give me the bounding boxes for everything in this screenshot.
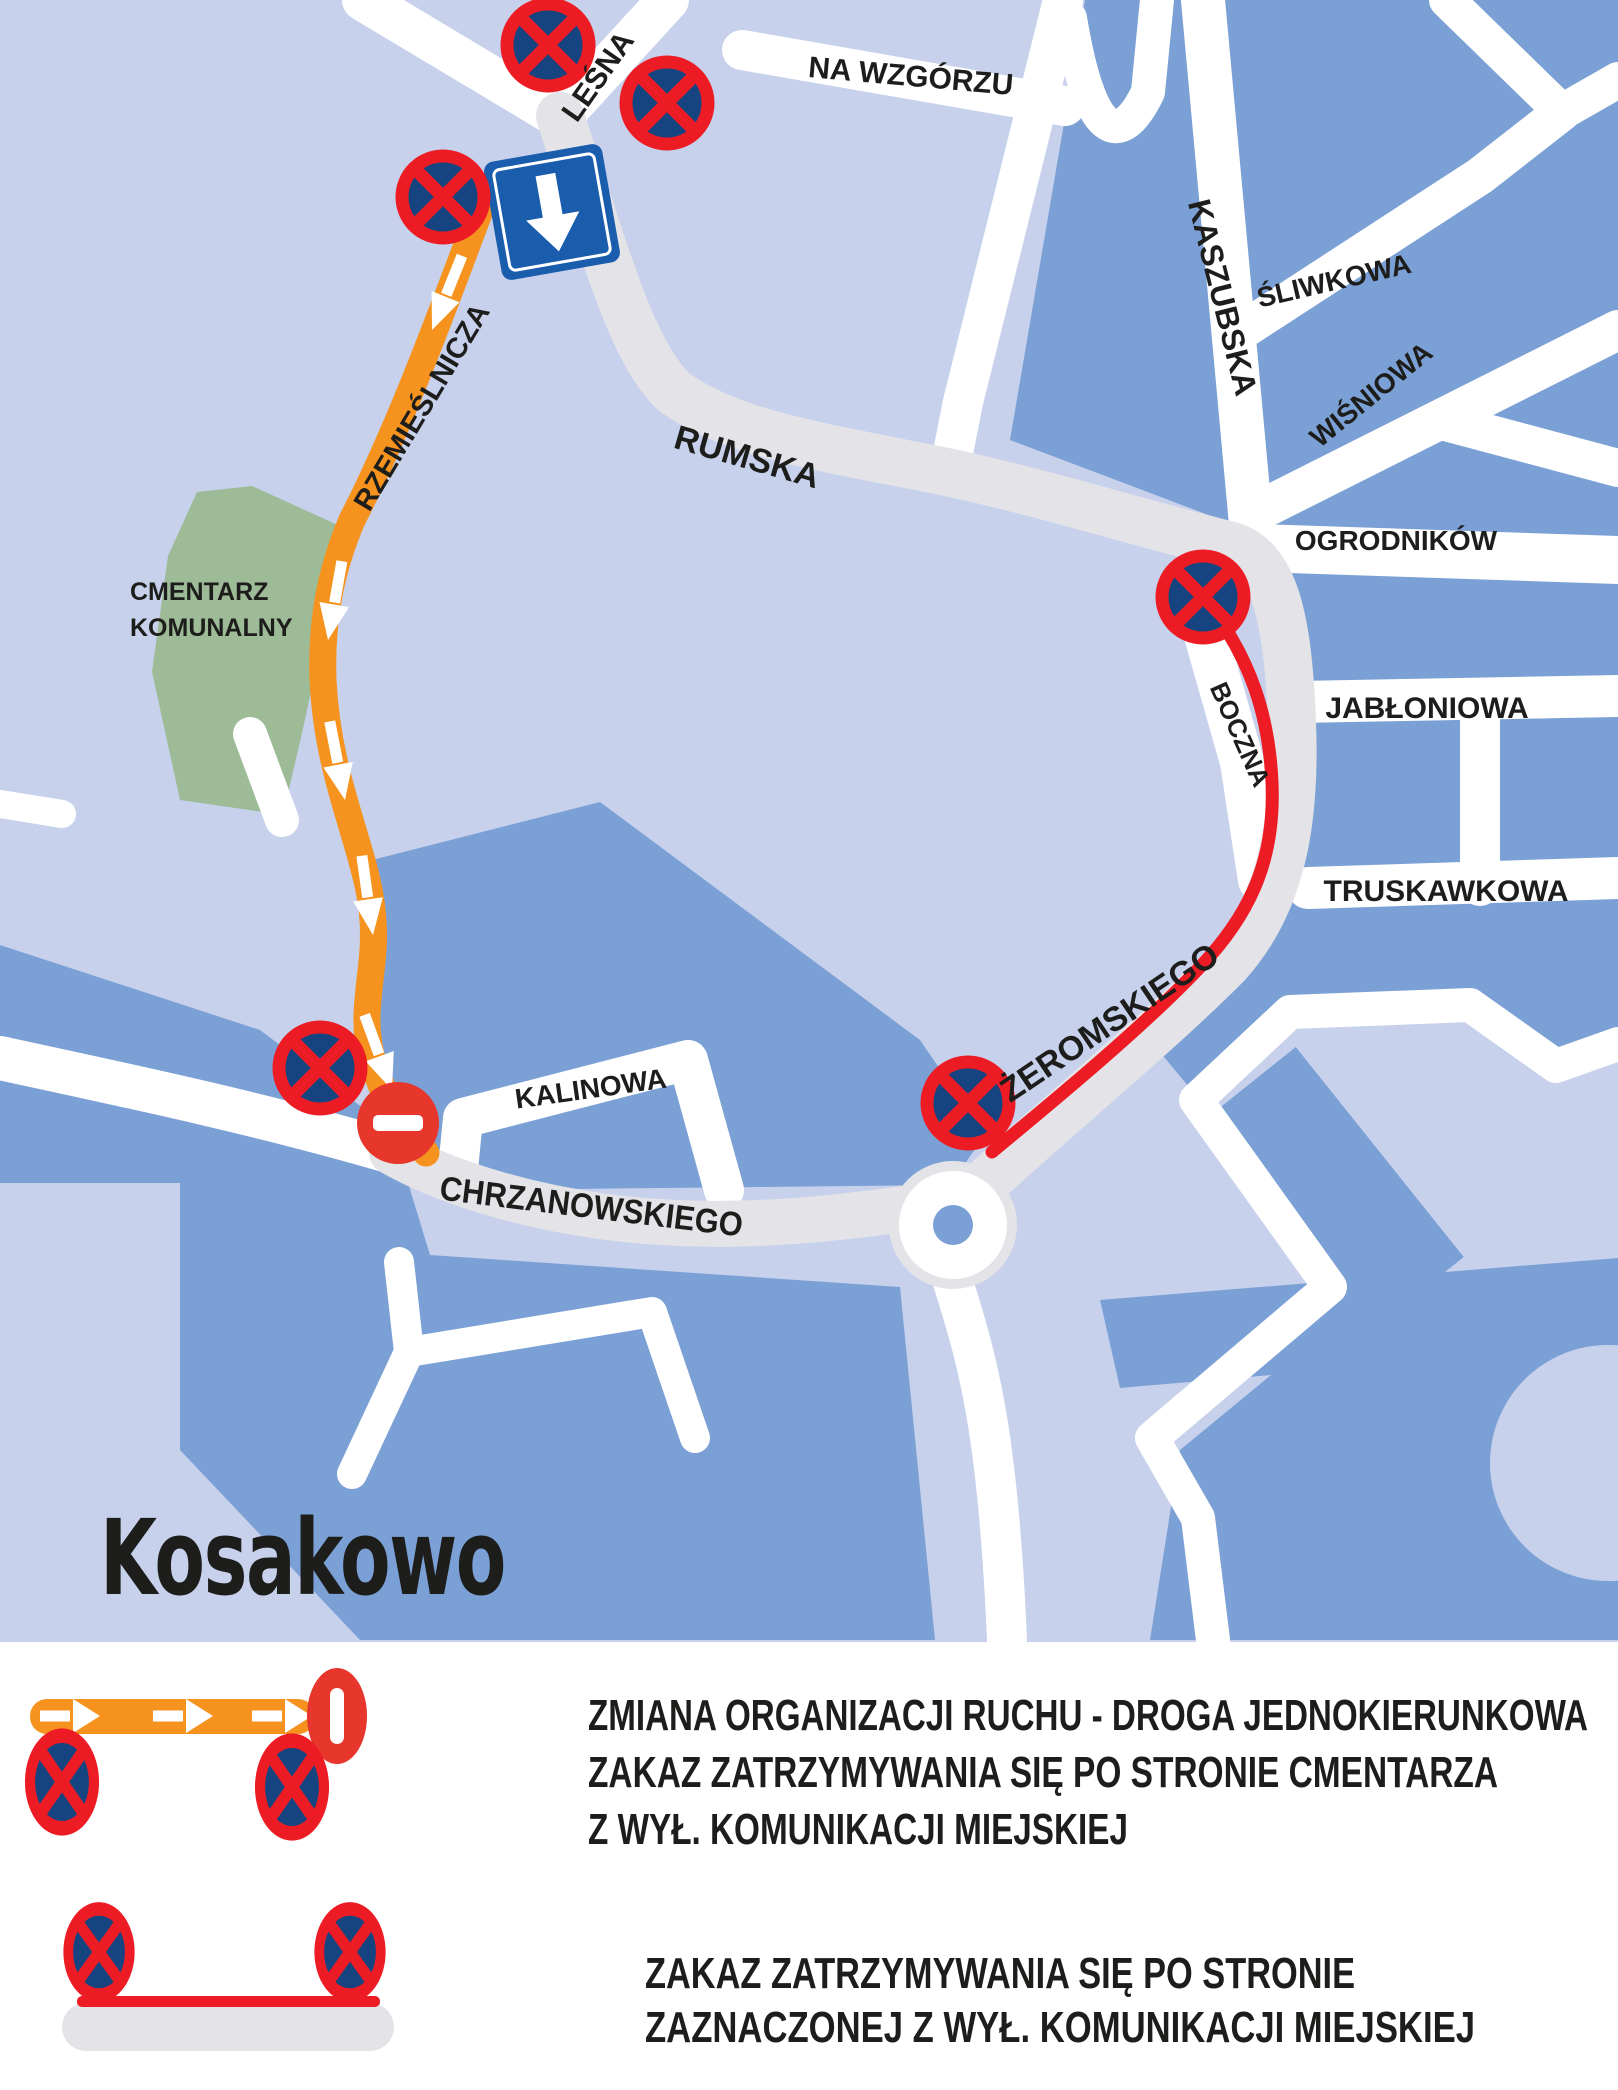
map-canvas: LEŚNA NA WZGÓRZU KASZUBSKA ŚLIWKOWA WIŚN… xyxy=(0,0,1618,2090)
cemetery-label-line2: KOMUNALNY xyxy=(130,614,293,642)
no-stopping-sign-icon xyxy=(68,1909,130,1995)
legend: ZMIANA ORGANIZACJI RUCHU - DROGA JEDNOKI… xyxy=(30,1668,1588,2052)
legend-one-way-line3: Z WYŁ. KOMUNIKACJI MIEJSKIEJ xyxy=(588,1805,1128,1854)
legend-no-stopping-symbol xyxy=(62,1909,394,2051)
no-stopping-sign-icon xyxy=(30,1736,94,1829)
no-stopping-sign-icon xyxy=(279,1027,361,1109)
cemetery-label-line1: CMENTARZ xyxy=(130,578,268,606)
no-stopping-sign-icon xyxy=(260,1741,324,1834)
legend-no-stopping-line2: ZAZNACZONEJ Z WYŁ. KOMUNIKACJI MIEJSKIEJ xyxy=(645,2003,1475,2052)
roundabout xyxy=(889,1161,1017,1289)
legend-no-stopping-text: ZAKAZ ZATRZYMYWANIA SIĘ PO STRONIE ZAZNA… xyxy=(645,1949,1475,2052)
street-label-jabloniowa: JABŁONIOWA xyxy=(1325,692,1528,725)
legend-red-line xyxy=(77,1996,380,2007)
kosakowo-traffic-map-page: LEŚNA NA WZGÓRZU KASZUBSKA ŚLIWKOWA WIŚN… xyxy=(0,0,1618,2090)
page-title: Kosakowo xyxy=(100,1497,505,1619)
no-entry-sign-icon xyxy=(357,1082,439,1164)
street-label-ogrodnikow: OGRODNIKÓW xyxy=(1295,525,1498,556)
no-stopping-sign-icon xyxy=(626,62,708,144)
legend-gray-road xyxy=(62,2003,394,2051)
map-area: LEŚNA NA WZGÓRZU KASZUBSKA ŚLIWKOWA WIŚN… xyxy=(0,0,1618,1642)
no-stopping-sign-icon xyxy=(1162,556,1244,638)
road-left-stub xyxy=(0,804,62,814)
street-label-truskawkowa: TRUSKAWKOWA xyxy=(1324,875,1569,908)
road-zigzag-south xyxy=(1198,1518,1213,1640)
one-way-down-sign-icon xyxy=(482,142,621,281)
legend-one-way-line1: ZMIANA ORGANIZACJI RUCHU - DROGA JEDNOKI… xyxy=(588,1691,1588,1740)
legend-no-stopping-line1: ZAKAZ ZATRZYMYWANIA SIĘ PO STRONIE xyxy=(645,1949,1355,1998)
legend-one-way-symbol xyxy=(30,1668,367,1833)
no-stopping-sign-icon xyxy=(319,1909,381,1995)
no-stopping-sign-icon xyxy=(507,4,589,86)
no-stopping-sign-icon xyxy=(402,156,484,238)
legend-one-way-line2: ZAKAZ ZATRZYMYWANIA SIĘ PO STRONIE CMENT… xyxy=(588,1748,1498,1797)
legend-one-way-text: ZMIANA ORGANIZACJI RUCHU - DROGA JEDNOKI… xyxy=(588,1691,1588,1854)
no-stopping-sign-icon xyxy=(927,1062,1009,1144)
